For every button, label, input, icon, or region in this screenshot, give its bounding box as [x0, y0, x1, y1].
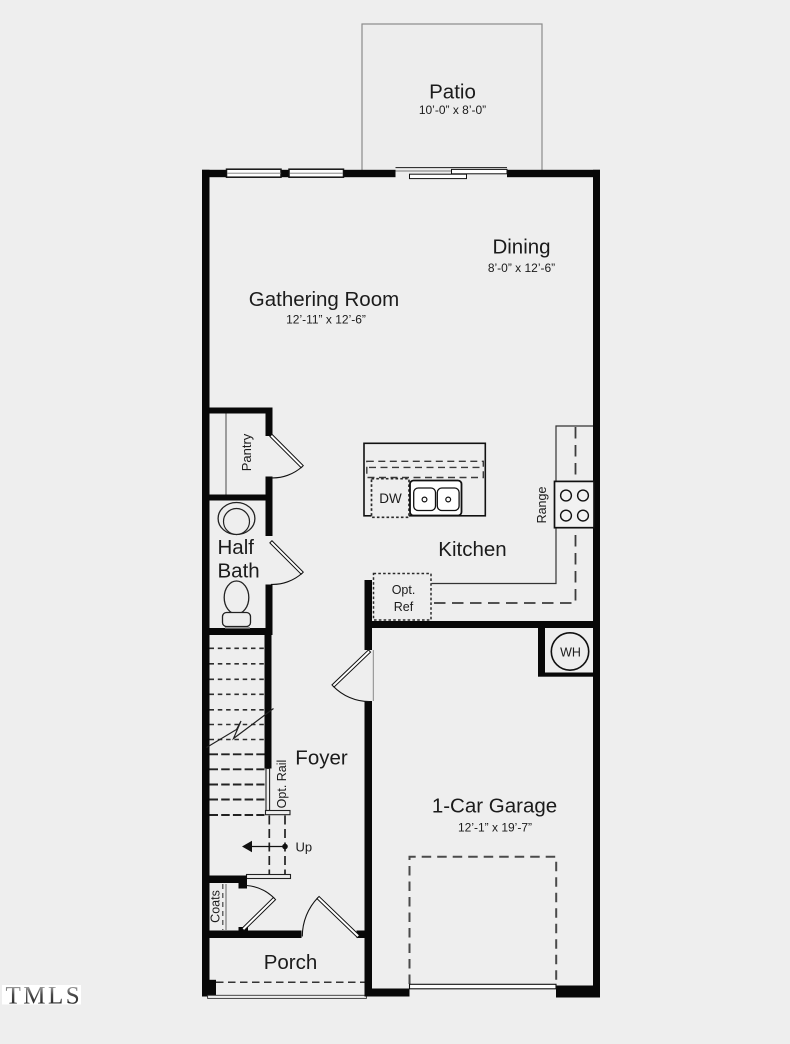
svg-text:Coats: Coats	[209, 890, 223, 923]
svg-text:Up: Up	[296, 840, 313, 855]
svg-text:DW: DW	[379, 491, 402, 506]
svg-text:Gathering Room: Gathering Room	[249, 288, 399, 311]
svg-text:8’-0” x 12’-6”: 8’-0” x 12’-6”	[488, 261, 555, 275]
svg-text:Foyer: Foyer	[295, 747, 348, 770]
svg-text:Half: Half	[218, 536, 255, 559]
svg-text:Ref: Ref	[394, 600, 414, 614]
svg-text:Opt.: Opt.	[392, 583, 416, 597]
svg-text:Porch: Porch	[264, 951, 318, 974]
svg-text:WH: WH	[560, 646, 581, 660]
svg-text:Bath: Bath	[218, 560, 260, 583]
svg-text:Opt. Rail: Opt. Rail	[275, 760, 289, 809]
svg-text:Patio: Patio	[429, 81, 476, 104]
svg-text:1-Car Garage: 1-Car Garage	[432, 795, 557, 818]
svg-text:TMLS: TMLS	[6, 983, 83, 1010]
svg-text:Kitchen: Kitchen	[438, 538, 506, 561]
svg-text:12’-11” x 12’-6”: 12’-11” x 12’-6”	[286, 313, 366, 327]
svg-text:12’-1” x 19’-7”: 12’-1” x 19’-7”	[458, 821, 532, 835]
svg-text:10’-0” x 8’-0”: 10’-0” x 8’-0”	[419, 103, 486, 117]
svg-text:Pantry: Pantry	[239, 433, 254, 471]
svg-text:Dining: Dining	[492, 236, 550, 259]
svg-text:Range: Range	[535, 487, 549, 524]
